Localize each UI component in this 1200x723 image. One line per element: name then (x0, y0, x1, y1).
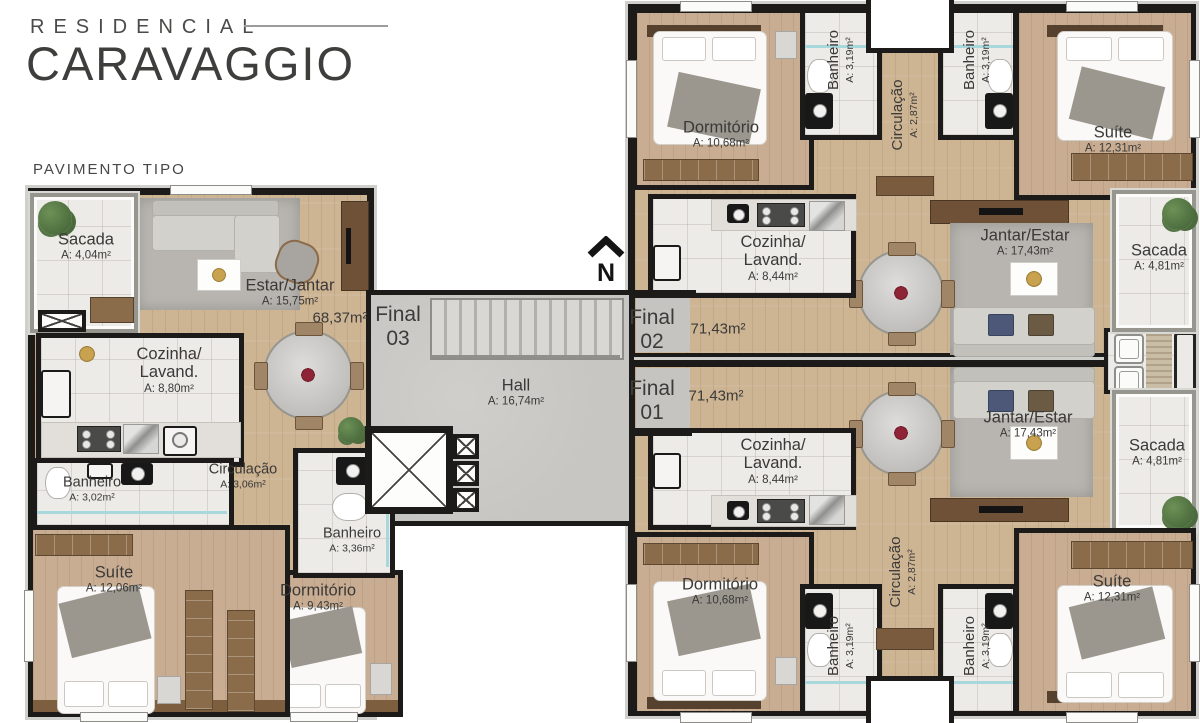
room-label-cozinha-01: Cozinha/ Lavand.A: 8,44m² (740, 436, 805, 486)
elevator-shaft (365, 426, 453, 514)
stove (757, 203, 805, 227)
vanity (985, 93, 1013, 129)
suite-final02 (1014, 8, 1196, 200)
countertop-sink (123, 424, 159, 454)
wardrobe (643, 159, 759, 181)
unit-label-final03: Final 03 (375, 303, 421, 351)
window (680, 1, 752, 12)
entry-recess (866, 676, 954, 723)
decor-medallion (212, 268, 226, 282)
sofa (953, 307, 1095, 345)
kitchen-sink (727, 501, 749, 520)
wardrobe (643, 543, 759, 565)
entry-recess (866, 0, 954, 53)
wardrobe (1071, 541, 1193, 569)
room-label-cozinha-02: Cozinha/ Lavand.A: 8,44m² (740, 233, 805, 283)
suite-final03 (28, 525, 290, 717)
stove (77, 426, 121, 452)
room-label-circulacao-02: CirculaçãoA: 2,87m² (890, 80, 920, 151)
window (290, 712, 358, 722)
threshold (876, 176, 934, 196)
wall-segment (634, 428, 692, 436)
shower-glass (37, 511, 227, 514)
nightstand (775, 31, 797, 59)
room-label-suite-02: SuíteA: 12,31m² (1085, 123, 1141, 154)
floorplan-scene: RESIDENCIAL CARAVAGGIO PAVIMENTO TIPO N … (0, 0, 1200, 723)
window (1189, 584, 1200, 662)
brand-line2: CARAVAGGIO (26, 36, 355, 91)
vanity (336, 457, 368, 485)
page-title: PAVIMENTO TIPO (33, 161, 186, 178)
room-label-jantar-02: Jantar/EstarA: 17,43m² (981, 226, 1070, 257)
dining-table (858, 390, 944, 476)
hall-label: Hall A: 16,74m² (488, 376, 544, 407)
room-label-dormitorio-02: DormitórioA: 10,68m² (683, 118, 759, 149)
window (1066, 712, 1138, 723)
dining-table (263, 330, 353, 420)
plant (1162, 198, 1194, 230)
unit-label-final02: Final 02 (629, 306, 675, 354)
tv (346, 228, 351, 264)
window (626, 584, 637, 662)
threshold (876, 628, 934, 650)
plant (1162, 496, 1194, 528)
coffee-table (197, 259, 241, 291)
plant (338, 417, 364, 443)
sink-cabinet (41, 370, 71, 418)
room-label-jantar-01: Jantar/EstarA: 17,43m² (984, 408, 1073, 439)
fridge (653, 453, 681, 489)
room-label-cozinha-03: Cozinha/ Lavand.A: 8,80m² (136, 345, 201, 395)
window (1066, 1, 1138, 12)
vanity (805, 93, 833, 129)
room-label-banheiro-dir-01: BanheiroA: 3,19m² (962, 616, 992, 676)
wardrobe (35, 534, 133, 556)
stairs (430, 298, 624, 360)
tv-panel (341, 201, 369, 291)
bedroom-final01 (632, 532, 814, 716)
room-label-sacada-02: SacadaA: 4,81m² (1131, 241, 1187, 272)
brand-rule (244, 25, 388, 27)
decor-bowl (79, 346, 95, 362)
unit-area-final03: 68,37m² (312, 310, 367, 327)
bed (57, 586, 155, 714)
duct-shaft (38, 310, 86, 332)
shower-glass (947, 681, 1013, 684)
balcony-service-strip (1104, 328, 1196, 394)
stair-rail (430, 355, 620, 358)
unit-label-final01: Final 01 (629, 377, 675, 425)
vanity (121, 463, 153, 485)
room-label-dormitorio-01: DormitórioA: 10,68m² (682, 575, 758, 606)
dining-table (858, 250, 944, 336)
table-flower (893, 285, 909, 301)
room-label-banheiro1-03: BanheiroA: 3,02m² (63, 474, 121, 503)
duct-shaft (453, 434, 479, 459)
north-arrow: N (584, 236, 628, 286)
room-label-circulacao-01: CirculaçãoA: 2,87m² (888, 537, 918, 608)
wardrobe (227, 610, 255, 712)
window (170, 185, 252, 195)
shower-glass (805, 681, 871, 684)
nightstand (157, 676, 181, 704)
room-label-suite-01: SuíteA: 12,31m² (1084, 572, 1140, 603)
north-chevron-icon (586, 236, 626, 258)
unit-area-final02: 71,43m² (690, 321, 745, 338)
suite-final01 (1014, 528, 1196, 716)
table-flower (300, 367, 316, 383)
coffee-table (1010, 262, 1058, 296)
unit-area-final01: 71,43m² (688, 388, 743, 405)
wardrobe (185, 590, 213, 710)
tv (979, 208, 1023, 215)
tv (979, 506, 1023, 513)
nightstand (370, 663, 392, 695)
room-label-dormitorio-03: DormitórioA: 9,43m² (280, 581, 356, 612)
bedroom-final02 (632, 8, 814, 190)
window (680, 712, 752, 723)
room-label-sacada-01: SacadaA: 4,81m² (1129, 436, 1185, 467)
ac-unit (1114, 334, 1144, 364)
table-flower (893, 425, 909, 441)
nightstand (775, 657, 797, 685)
window (80, 712, 148, 722)
window (24, 590, 34, 662)
window (626, 60, 637, 138)
washer (163, 426, 197, 456)
room-label-banheiro-esq-02: BanheiroA: 3,19m² (826, 30, 856, 90)
planter (90, 297, 134, 323)
privacy-divider (1174, 332, 1196, 396)
fridge (653, 245, 681, 281)
north-label: N (584, 261, 628, 286)
duct-shaft (453, 488, 479, 512)
stove (757, 499, 805, 523)
dining-chair (295, 416, 323, 430)
bed (280, 607, 366, 714)
countertop (809, 495, 845, 525)
kitchen-sink (727, 204, 749, 223)
room-label-banheiro2-03: BanheiroA: 3,36m² (323, 525, 381, 554)
wall-segment (634, 290, 696, 298)
window (1189, 60, 1200, 138)
wardrobe (1071, 153, 1193, 181)
dining-chair (254, 362, 268, 390)
room-label-banheiro-esq-01: BanheiroA: 3,19m² (826, 616, 856, 676)
tv-console (930, 498, 1069, 522)
room-label-suite-03: SuíteA: 12,06m² (86, 563, 142, 594)
room-label-circulacao-03: CirculaçãoA: 3,06m² (209, 461, 278, 490)
dining-chair (350, 362, 364, 390)
toilet (332, 493, 368, 521)
countertop (809, 201, 845, 231)
duct-shaft (453, 461, 479, 486)
room-label-estar-03: Estar/JantarA: 15,75m² (246, 276, 335, 307)
decor-medallion (1026, 271, 1042, 287)
woven-mat (1146, 332, 1172, 390)
room-label-banheiro-dir-02: BanheiroA: 3,19m² (962, 30, 992, 90)
room-label-sacada-03: SacadaA: 4,04m² (58, 230, 114, 261)
tv-console (930, 200, 1069, 224)
